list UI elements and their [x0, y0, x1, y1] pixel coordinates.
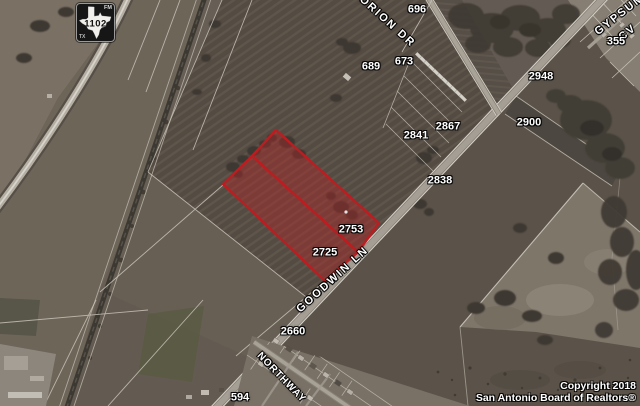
sign-state-label: TX	[79, 34, 85, 40]
address-label: 2838	[428, 176, 452, 187]
fm-1102-highway-sign: FM 1102 TX	[76, 3, 115, 42]
aerial-map[interactable]: FM 1102 TX ORION DR GYPSUM CV GOODWIN LN…	[0, 0, 640, 406]
copyright-line2: San Antonio Board of Realtors®	[476, 393, 636, 404]
sign-route-number: 1102	[84, 18, 107, 29]
address-label: 696	[408, 5, 426, 16]
address-label: 594	[231, 393, 249, 404]
satellite-imagery	[0, 0, 640, 406]
address-label: 2867	[436, 122, 460, 133]
grain-overlay	[0, 0, 640, 406]
copyright-notice: Copyright 2018 San Antonio Board of Real…	[476, 381, 636, 404]
address-label-parcel-north: 2753	[339, 225, 363, 236]
address-label-parcel-south: 2725	[313, 248, 337, 259]
address-label: 2948	[529, 72, 553, 83]
address-label: 2900	[517, 118, 541, 129]
address-label: 355	[607, 37, 625, 48]
sign-route-type: FM	[104, 5, 112, 11]
copyright-line1: Copyright 2018	[476, 381, 636, 392]
address-label: 2660	[281, 327, 305, 338]
address-label: 2841	[404, 131, 428, 142]
address-label: 689	[362, 62, 380, 73]
address-label: 673	[395, 57, 413, 68]
